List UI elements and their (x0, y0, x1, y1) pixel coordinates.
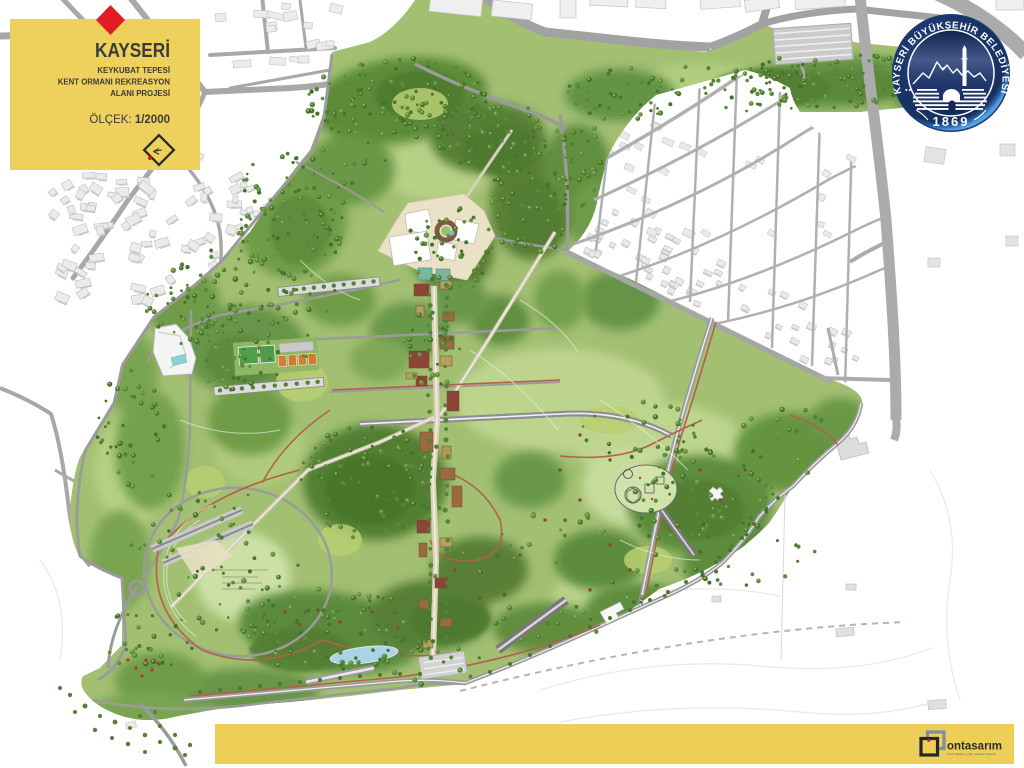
svg-text:ALANI PROJESİ: ALANI PROJESİ (110, 89, 170, 98)
svg-text:KEYKUBAT TEPESİ: KEYKUBAT TEPESİ (97, 66, 170, 75)
svg-text:kent tasarım yapı kentsel este: kent tasarım yapı kentsel estetik (948, 752, 997, 756)
svg-text:KAYSERİ: KAYSERİ (95, 39, 170, 62)
svg-text:ontasarım: ontasarım (947, 739, 1002, 753)
svg-text:1869: 1869 (933, 114, 970, 129)
svg-text:KENT ORMANI REKREASYON: KENT ORMANI REKREASYON (58, 78, 171, 87)
svg-text:ÖLÇEK: 1/2000: ÖLÇEK: 1/2000 (89, 114, 170, 126)
